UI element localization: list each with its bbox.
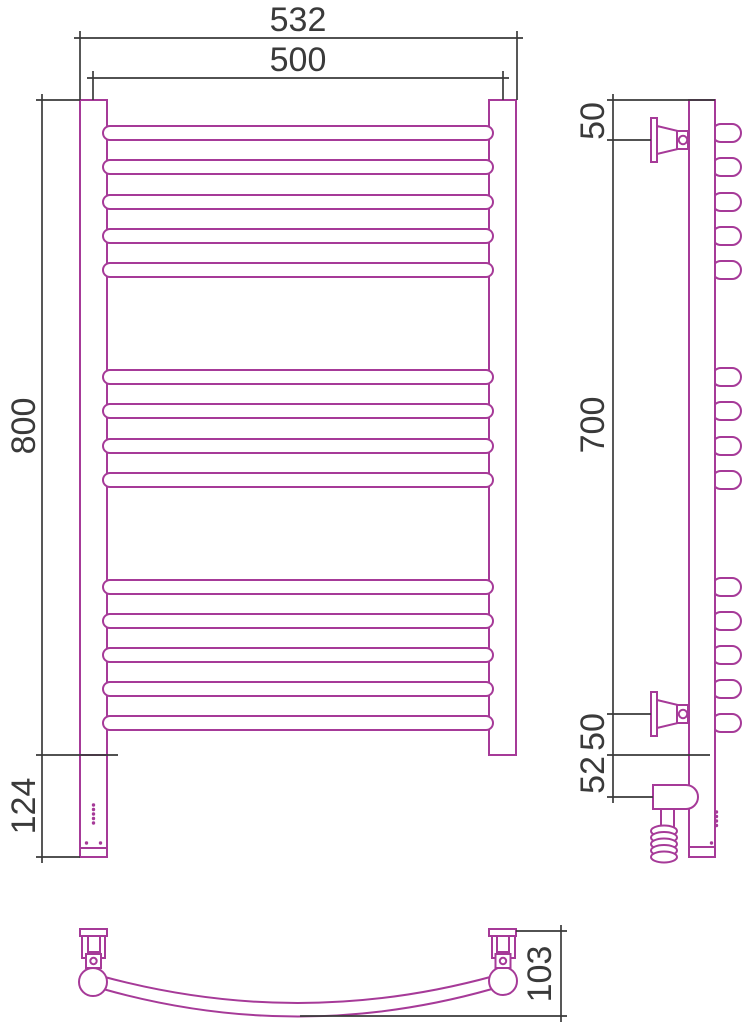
rung-end (712, 680, 741, 698)
dim-label-overall-width: 532 (270, 1, 327, 39)
technical-drawing-page: 532 500 800 124 50 700 50 52 103 (0, 0, 750, 1028)
side-post (689, 100, 715, 857)
bracket-collar (496, 954, 511, 968)
dim-label-bottom-to-heater: 52 (574, 756, 612, 794)
bracket-collar (86, 954, 101, 968)
bracket-stem (88, 936, 100, 952)
bracket-body (657, 700, 678, 728)
rung (103, 473, 493, 487)
rung (103, 682, 493, 696)
rung (103, 160, 493, 174)
rung (103, 404, 493, 418)
dimension-mounting-width: 500 (87, 41, 509, 100)
rung-end (712, 402, 741, 420)
rung-end (712, 471, 741, 489)
dim-label-bracket-to-bottom: 50 (574, 713, 612, 751)
rung (103, 126, 493, 140)
rung-end (712, 368, 741, 386)
post-section-right (489, 967, 517, 995)
rung-end (712, 578, 741, 596)
rung (103, 229, 493, 243)
rung-end (712, 158, 741, 176)
bracket-stem (497, 936, 509, 952)
dim-label-mounting-width: 500 (270, 41, 327, 79)
rung (103, 648, 493, 662)
rung (103, 195, 493, 209)
cable-neck (661, 809, 674, 827)
dim-label-height: 800 (5, 398, 43, 455)
rung (103, 614, 493, 628)
rung (103, 370, 493, 384)
rung-end (712, 437, 741, 455)
rung-end (712, 261, 741, 279)
rung-end (712, 227, 741, 245)
dimension-depth: 103 (300, 925, 567, 1022)
dim-label-depth: 103 (521, 946, 559, 1003)
side-view (651, 100, 741, 863)
bracket-flange (489, 929, 516, 936)
wall-bracket-bottom (651, 692, 688, 736)
towel-rail-drawing: 532 500 800 124 50 700 50 52 103 (0, 0, 750, 1028)
rung (103, 716, 493, 730)
post-section-left (79, 968, 107, 996)
rung-end (712, 193, 741, 211)
bottom-bracket-left (80, 929, 107, 968)
rung (103, 580, 493, 594)
rung-end (712, 646, 741, 664)
heating-element-housing (653, 785, 698, 809)
dim-label-top-to-bracket: 50 (574, 102, 612, 140)
spiral-power-cable (651, 826, 677, 863)
curved-rung-outer-arc (101, 976, 494, 1003)
rung (103, 439, 493, 453)
dim-label-bracket-span: 700 (574, 397, 612, 454)
bottom-view (79, 929, 517, 1017)
wall-bracket-top (651, 118, 688, 162)
rung-end (712, 714, 741, 732)
bracket-flange (80, 929, 107, 936)
bracket-body (657, 126, 678, 154)
front-view (80, 100, 516, 857)
rung-end (712, 124, 741, 142)
rung (103, 263, 493, 277)
bottom-bracket-right (489, 929, 516, 968)
rung-end (712, 612, 741, 630)
dim-label-heater-section: 124 (5, 778, 43, 835)
